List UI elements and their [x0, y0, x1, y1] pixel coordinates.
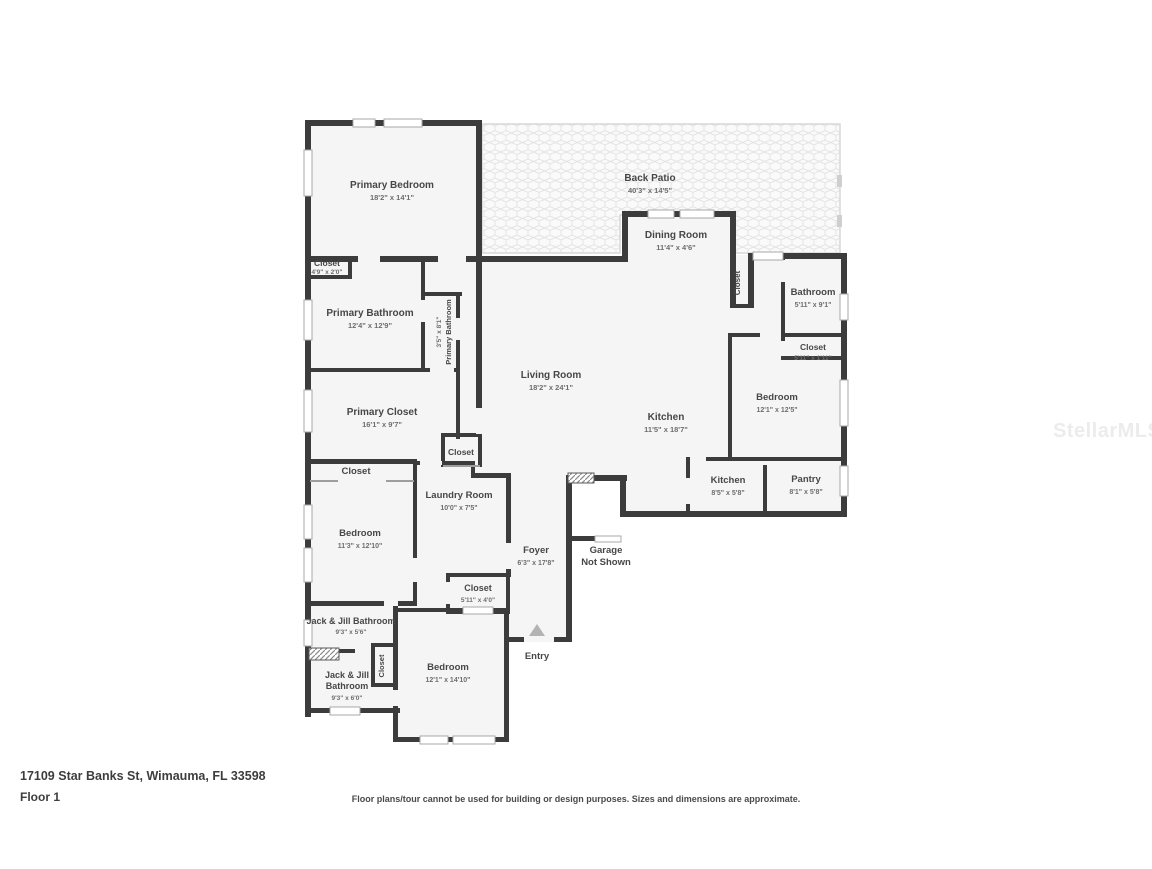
room-label-primary-closet: Primary Closet	[347, 407, 418, 418]
room-dims-kitchen: 11'5" x 18'7"	[644, 425, 688, 434]
room-dims-pantry: 8'1" x 5'8"	[789, 489, 822, 496]
room-dims-laundry-room: 10'0" x 7'5"	[440, 505, 477, 512]
room-label-closet-bathroom: Closet	[800, 342, 826, 352]
room-dims-bathroom: 5'11" x 9'1"	[795, 302, 832, 309]
floor-plan: Primary Bedroom 18'2" x 14'1" Back Patio…	[0, 0, 1152, 864]
watermark: StellarMLS	[1053, 420, 1152, 443]
room-label-bedroom-left: Bedroom	[339, 528, 381, 539]
room-label-primary-bathroom-2: Primary Bathroom	[444, 299, 453, 365]
room-label-closet-dining: Closet	[733, 270, 742, 295]
room-dims-primary-bedroom: 18'2" x 14'1"	[370, 193, 414, 202]
room-dims-back-patio: 40'3" x 14'5"	[628, 186, 672, 195]
room-label-closet-hall: Closet	[448, 447, 474, 457]
room-label-primary-bedroom: Primary Bedroom	[350, 180, 434, 191]
room-label-laundry-room: Laundry Room	[425, 490, 492, 501]
garage-label-line2: Not Shown	[581, 557, 631, 568]
room-dims-bedroom-right: 12'1" x 12'5"	[756, 407, 797, 414]
room-dims-living-room: 18'2" x 24'1"	[529, 383, 573, 392]
hatch-jack-jill	[309, 648, 339, 660]
room-label-jack-jill-bathroom-2a: Jack & Jill	[325, 670, 369, 680]
room-label-primary-bathroom: Primary Bathroom	[326, 308, 413, 319]
room-label-back-patio: Back Patio	[624, 173, 675, 184]
room-label-kitchen-small: Kitchen	[711, 475, 746, 486]
room-dims-kitchen-small: 8'5" x 5'8"	[711, 490, 744, 497]
room-dims-primary-bathroom: 12'4" x 12'9"	[348, 321, 392, 330]
room-dims-jack-jill-bathroom-2: 9'3" x 6'0"	[332, 695, 363, 702]
room-dims-primary-bathroom-2: 3'5" x 8'1"	[436, 317, 443, 348]
room-label-jack-jill-bathroom-1: Jack & Jill Bathroom	[306, 616, 395, 626]
room-label-jack-jill-bathroom-2b: Bathroom	[326, 681, 369, 691]
room-dims-primary-closet: 16'1" x 9'7"	[362, 420, 402, 429]
patio-edge-mark	[837, 215, 842, 227]
room-label-pantry: Pantry	[791, 474, 821, 485]
room-label-foyer: Foyer	[523, 545, 549, 556]
room-label-dining-room: Dining Room	[645, 230, 707, 241]
room-dims-jack-jill-bathroom-1: 9'3" x 5'6"	[336, 629, 367, 636]
room-dims-bedroom-left: 11'3" x 12'10"	[338, 543, 383, 550]
room-label-kitchen: Kitchen	[648, 412, 685, 423]
room-dims-bedroom-bottom: 12'1" x 14'10"	[425, 677, 470, 684]
closet-door-gap	[338, 478, 386, 484]
disclaimer-text: Floor plans/tour cannot be used for buil…	[0, 794, 1152, 804]
garage-label-line1: Garage	[590, 545, 623, 556]
room-label-bathroom: Bathroom	[791, 287, 836, 298]
room-dims-dining-room: 11'4" x 4'6"	[656, 243, 696, 252]
entry-label: Entry	[525, 651, 550, 662]
room-label-living-room: Living Room	[521, 370, 582, 381]
address-text: 17109 Star Banks St, Wimauma, FL 33598	[20, 769, 266, 783]
patio-edge-mark	[837, 175, 842, 187]
room-dims-closet-primary-bed: 4'9" x 2'0"	[312, 269, 343, 276]
room-dims-closet-entry: 5'11" x 4'0"	[461, 597, 495, 604]
room-label-closet-bedroom-left: Closet	[341, 466, 371, 477]
room-label-bedroom-bottom: Bedroom	[427, 662, 469, 673]
room-label-bedroom-right: Bedroom	[756, 392, 798, 403]
room-dims-foyer: 6'3" x 17'8"	[517, 560, 554, 567]
room-dims-closet-bathroom: 5'11" x 1'11"	[794, 355, 831, 362]
hatch-foyer	[568, 473, 594, 483]
room-label-closet-primary-bed: Closet	[314, 258, 340, 268]
floor-plan-svg: Primary Bedroom 18'2" x 14'1" Back Patio…	[0, 0, 1152, 864]
room-label-closet-entry: Closet	[464, 583, 492, 593]
room-label-closet-jj: Closet	[377, 654, 386, 677]
